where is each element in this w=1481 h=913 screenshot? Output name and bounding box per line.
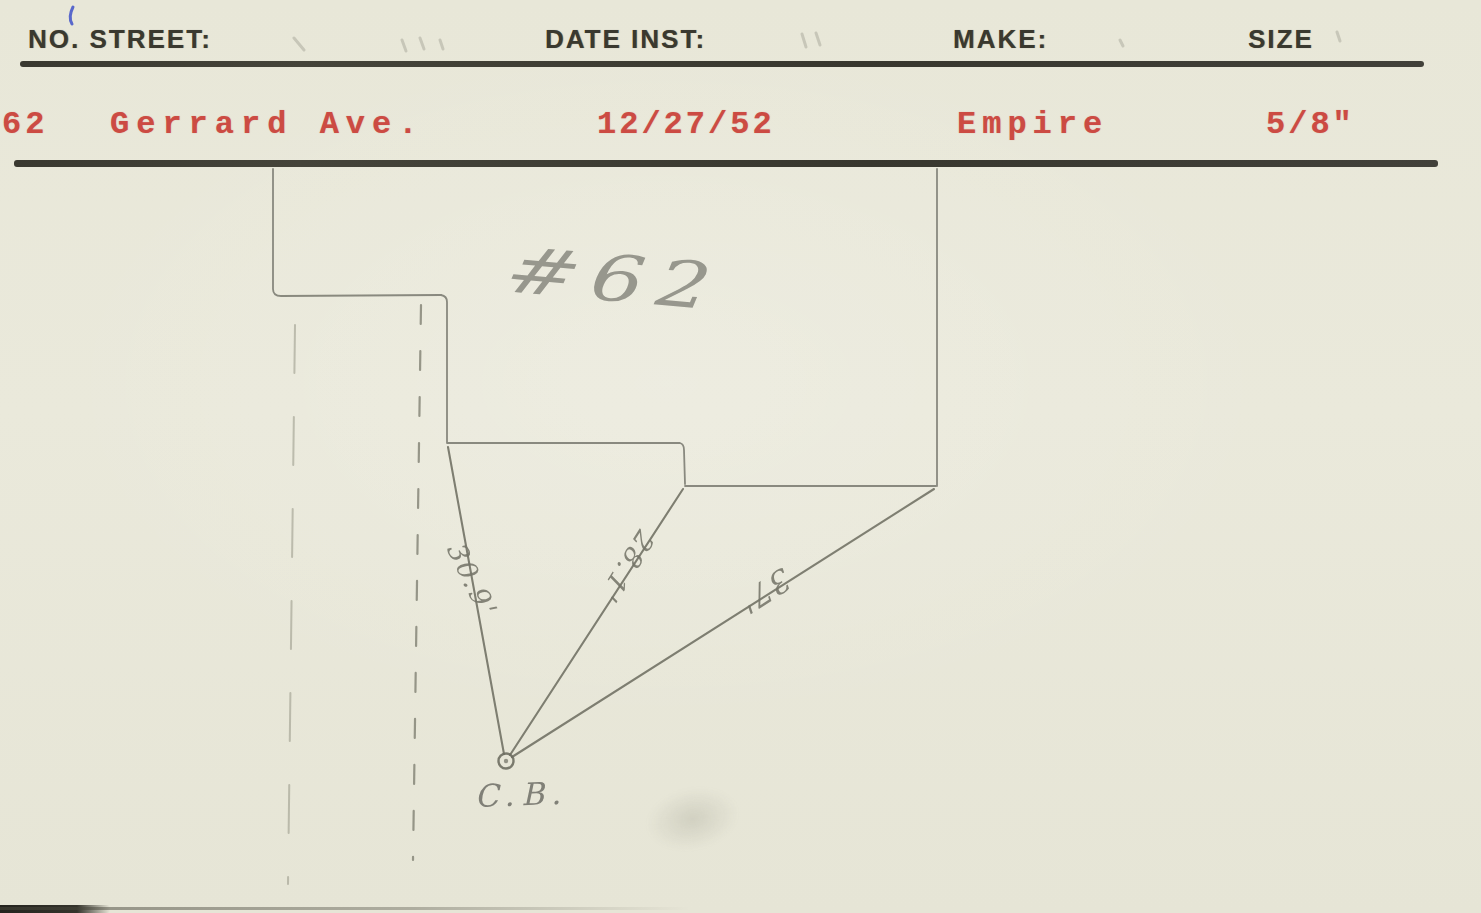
property-line-dashed [413,305,421,860]
lot-outline [273,169,937,486]
curb-box-label: C.B. [474,775,568,814]
curb-line-dashed [288,325,295,884]
plot-sketch [0,0,1481,913]
lot-line-left-step [441,295,447,442]
lot-line-left [273,169,441,296]
building-front-left [447,443,685,484]
curb-box-symbol [499,754,514,769]
scan-edge-faint [0,907,690,910]
measurement-lines [448,447,934,757]
smudge-marks [294,32,1340,51]
tie-line-28-1 [510,489,683,755]
water-service-record-card: NO. STREET: DATE INST: MAKE: SIZE 62 Ger… [0,0,1481,913]
tie-line-37 [512,489,934,757]
blue-ink-mark [70,7,73,24]
